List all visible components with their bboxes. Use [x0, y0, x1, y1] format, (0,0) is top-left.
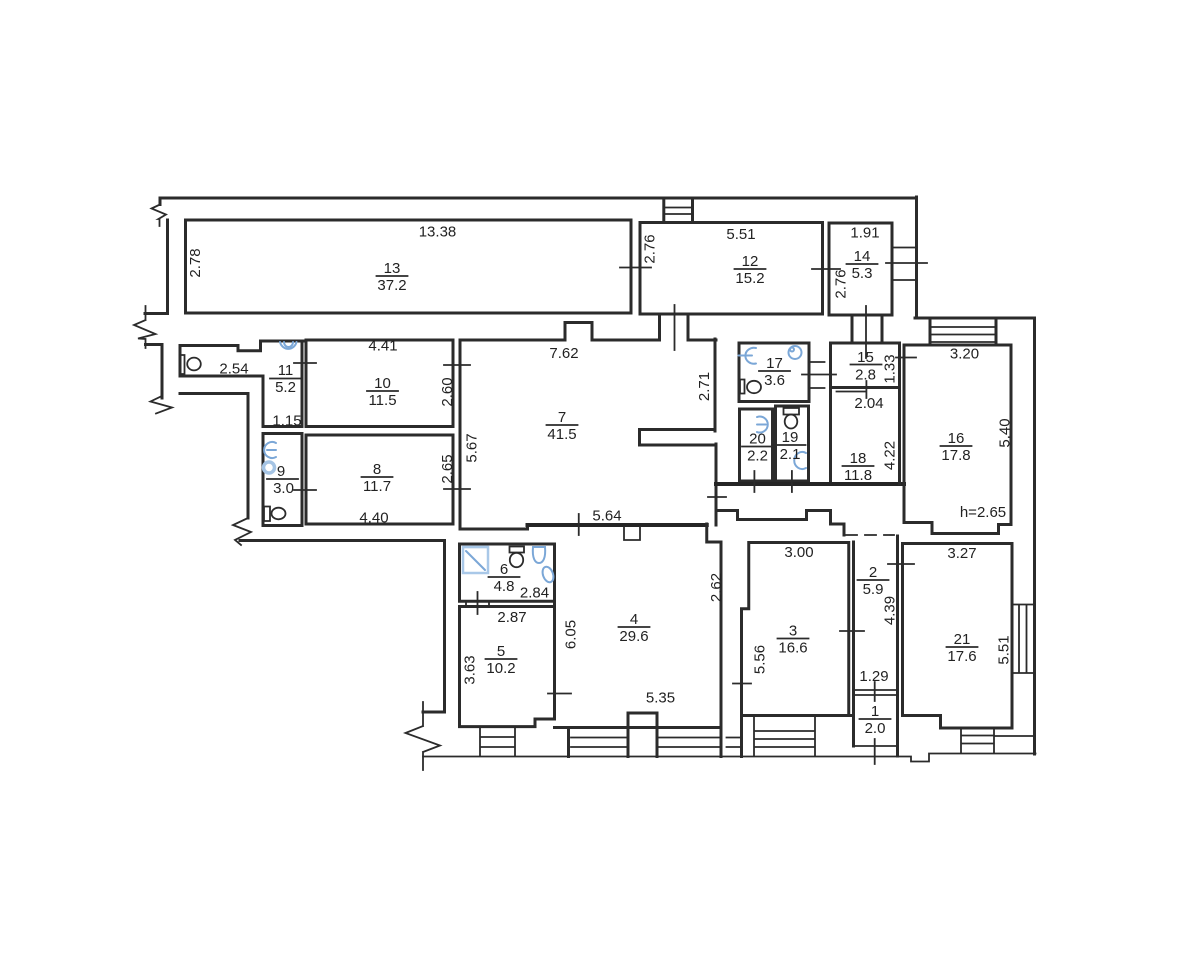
- svg-text:2.76: 2.76: [833, 269, 850, 298]
- svg-text:13: 13: [384, 260, 401, 277]
- svg-text:5.67: 5.67: [464, 433, 481, 462]
- svg-text:16: 16: [948, 430, 965, 447]
- svg-text:7: 7: [558, 409, 566, 426]
- svg-text:5.3: 5.3: [852, 265, 873, 282]
- svg-text:2.60: 2.60: [439, 377, 456, 406]
- svg-text:15: 15: [857, 349, 874, 366]
- svg-text:16.6: 16.6: [778, 640, 807, 657]
- svg-text:2.78: 2.78: [187, 248, 204, 277]
- svg-text:4: 4: [630, 611, 638, 628]
- svg-text:5.56: 5.56: [752, 645, 769, 674]
- svg-text:h=2.65: h=2.65: [960, 504, 1006, 521]
- svg-text:8: 8: [373, 461, 381, 478]
- svg-text:29.6: 29.6: [619, 628, 648, 645]
- svg-text:4.41: 4.41: [368, 338, 397, 355]
- svg-text:5.51: 5.51: [996, 635, 1013, 664]
- svg-text:2.76: 2.76: [642, 234, 659, 263]
- svg-text:4.8: 4.8: [494, 578, 515, 595]
- svg-text:1: 1: [871, 703, 879, 720]
- svg-text:10.2: 10.2: [486, 660, 515, 677]
- svg-text:12: 12: [742, 253, 759, 270]
- svg-text:3: 3: [789, 623, 797, 640]
- svg-text:5.35: 5.35: [646, 690, 675, 707]
- svg-text:2.62: 2.62: [708, 573, 725, 602]
- svg-text:5.9: 5.9: [863, 581, 884, 598]
- svg-text:17.6: 17.6: [947, 648, 976, 665]
- svg-text:17.8: 17.8: [941, 447, 970, 464]
- svg-text:5.51: 5.51: [726, 226, 755, 243]
- svg-text:13.38: 13.38: [419, 224, 457, 241]
- svg-text:15.2: 15.2: [735, 270, 764, 287]
- svg-text:5.2: 5.2: [275, 379, 296, 396]
- svg-text:5.64: 5.64: [592, 508, 621, 525]
- svg-text:3.27: 3.27: [947, 545, 976, 562]
- svg-text:2.87: 2.87: [497, 609, 526, 626]
- svg-text:3.63: 3.63: [462, 655, 479, 684]
- svg-text:11.8: 11.8: [844, 467, 872, 484]
- svg-text:1.33: 1.33: [882, 354, 899, 383]
- svg-text:5: 5: [497, 643, 505, 660]
- svg-text:2.2: 2.2: [747, 448, 768, 465]
- svg-text:41.5: 41.5: [547, 426, 576, 443]
- svg-text:1.15: 1.15: [272, 413, 301, 430]
- svg-text:21: 21: [954, 631, 971, 648]
- svg-text:3.0: 3.0: [273, 480, 294, 497]
- svg-text:3.00: 3.00: [784, 544, 813, 561]
- svg-text:2.1: 2.1: [780, 446, 801, 463]
- svg-text:4.40: 4.40: [359, 510, 388, 527]
- svg-text:3.20: 3.20: [950, 346, 979, 363]
- svg-text:2.0: 2.0: [865, 720, 886, 737]
- svg-text:19: 19: [782, 429, 799, 446]
- svg-text:11.7: 11.7: [363, 478, 391, 495]
- svg-text:5.40: 5.40: [997, 418, 1014, 447]
- svg-text:2.84: 2.84: [520, 585, 549, 602]
- svg-text:6: 6: [500, 561, 508, 578]
- svg-text:14: 14: [854, 248, 871, 265]
- svg-text:1.91: 1.91: [850, 225, 879, 242]
- svg-text:2.04: 2.04: [854, 395, 883, 412]
- svg-text:4.39: 4.39: [882, 596, 899, 625]
- svg-text:18: 18: [850, 450, 867, 467]
- svg-text:2.54: 2.54: [219, 361, 248, 378]
- svg-text:7.62: 7.62: [549, 345, 578, 362]
- svg-text:2: 2: [869, 564, 877, 581]
- svg-text:1.29: 1.29: [859, 668, 888, 685]
- svg-text:11.5: 11.5: [368, 392, 396, 409]
- svg-text:6.05: 6.05: [563, 620, 580, 649]
- svg-text:9: 9: [277, 463, 285, 480]
- svg-text:17: 17: [766, 355, 783, 372]
- svg-text:37.2: 37.2: [377, 277, 406, 294]
- svg-text:3.6: 3.6: [764, 372, 785, 389]
- svg-text:20: 20: [749, 431, 766, 448]
- svg-text:4.22: 4.22: [882, 441, 899, 470]
- svg-text:2.71: 2.71: [696, 372, 713, 401]
- svg-text:11: 11: [278, 362, 294, 379]
- svg-text:2.65: 2.65: [439, 454, 456, 483]
- svg-text:10: 10: [374, 375, 391, 392]
- svg-text:2.8: 2.8: [855, 367, 876, 384]
